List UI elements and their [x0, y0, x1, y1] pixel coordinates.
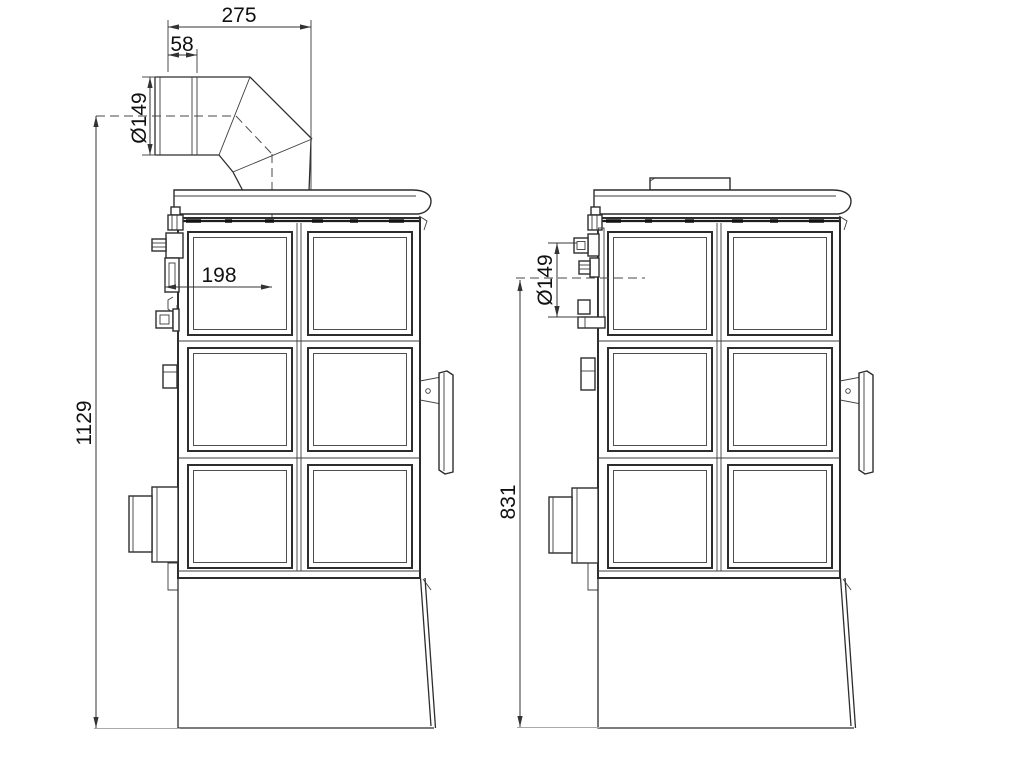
- door-handle: [420, 371, 453, 474]
- tile-panel: [188, 348, 292, 451]
- dim-label-rear-outlet-diameter: Ø149: [534, 254, 557, 305]
- base-pedestal: [598, 578, 856, 728]
- stove-body-left-view: [129, 190, 453, 728]
- side-hardware: [129, 207, 183, 590]
- combustion-air-inlet: [129, 487, 178, 562]
- hinge-block: [166, 233, 183, 258]
- tile-panel: [308, 232, 412, 335]
- tile-panel: [608, 465, 712, 568]
- step-bracket: [168, 563, 178, 590]
- latch-hook: [578, 300, 590, 314]
- tile-panel: [728, 348, 832, 451]
- tile-panel: [608, 348, 712, 451]
- bolt-head: [579, 261, 590, 274]
- dimension-overall-height-1129: 1129: [73, 116, 180, 729]
- stove-body-right-view: [549, 190, 873, 728]
- tile-panel: [308, 348, 412, 451]
- bolt-head: [156, 311, 173, 328]
- top-flue-collar: [650, 178, 730, 190]
- step-bracket: [588, 563, 598, 590]
- tile-panel: [728, 465, 832, 568]
- dim-label-outlet-center-height: 831: [497, 484, 520, 519]
- technical-drawing-page: 275 58 Ø149: [0, 0, 1024, 768]
- tile-panel: [188, 465, 292, 568]
- dim-label-pipe-center-offset: 198: [201, 264, 236, 287]
- dim-label-overall-height: 1129: [73, 400, 96, 445]
- hinge-bolt: [152, 239, 166, 251]
- right-side-view: Ø149 831: [497, 178, 873, 728]
- combustion-air-inlet: [549, 488, 598, 563]
- door-handle: [840, 371, 873, 474]
- dim-label-pipe-socket: 58: [170, 33, 193, 56]
- tile-panel: [728, 232, 832, 335]
- bolt-head: [574, 238, 588, 253]
- base-pedestal: [178, 578, 436, 728]
- tile-panel: [308, 465, 412, 568]
- dimension-pipe-socket-58: 58: [168, 33, 197, 73]
- dimension-pipe-total-275: 275: [168, 4, 311, 190]
- dimension-rear-outlet-diameter-149: Ø149: [534, 243, 582, 317]
- dim-label-pipe-total: 275: [221, 4, 256, 27]
- dim-label-pipe-diameter: Ø149: [128, 92, 151, 143]
- cornice: [594, 190, 851, 214]
- tile-panel: [608, 232, 712, 335]
- technical-drawing-canvas: 275 58 Ø149: [0, 0, 1024, 768]
- left-side-view: 275 58 Ø149: [73, 4, 453, 729]
- flue-elbow-pipe: [155, 77, 312, 191]
- cornice: [174, 190, 431, 214]
